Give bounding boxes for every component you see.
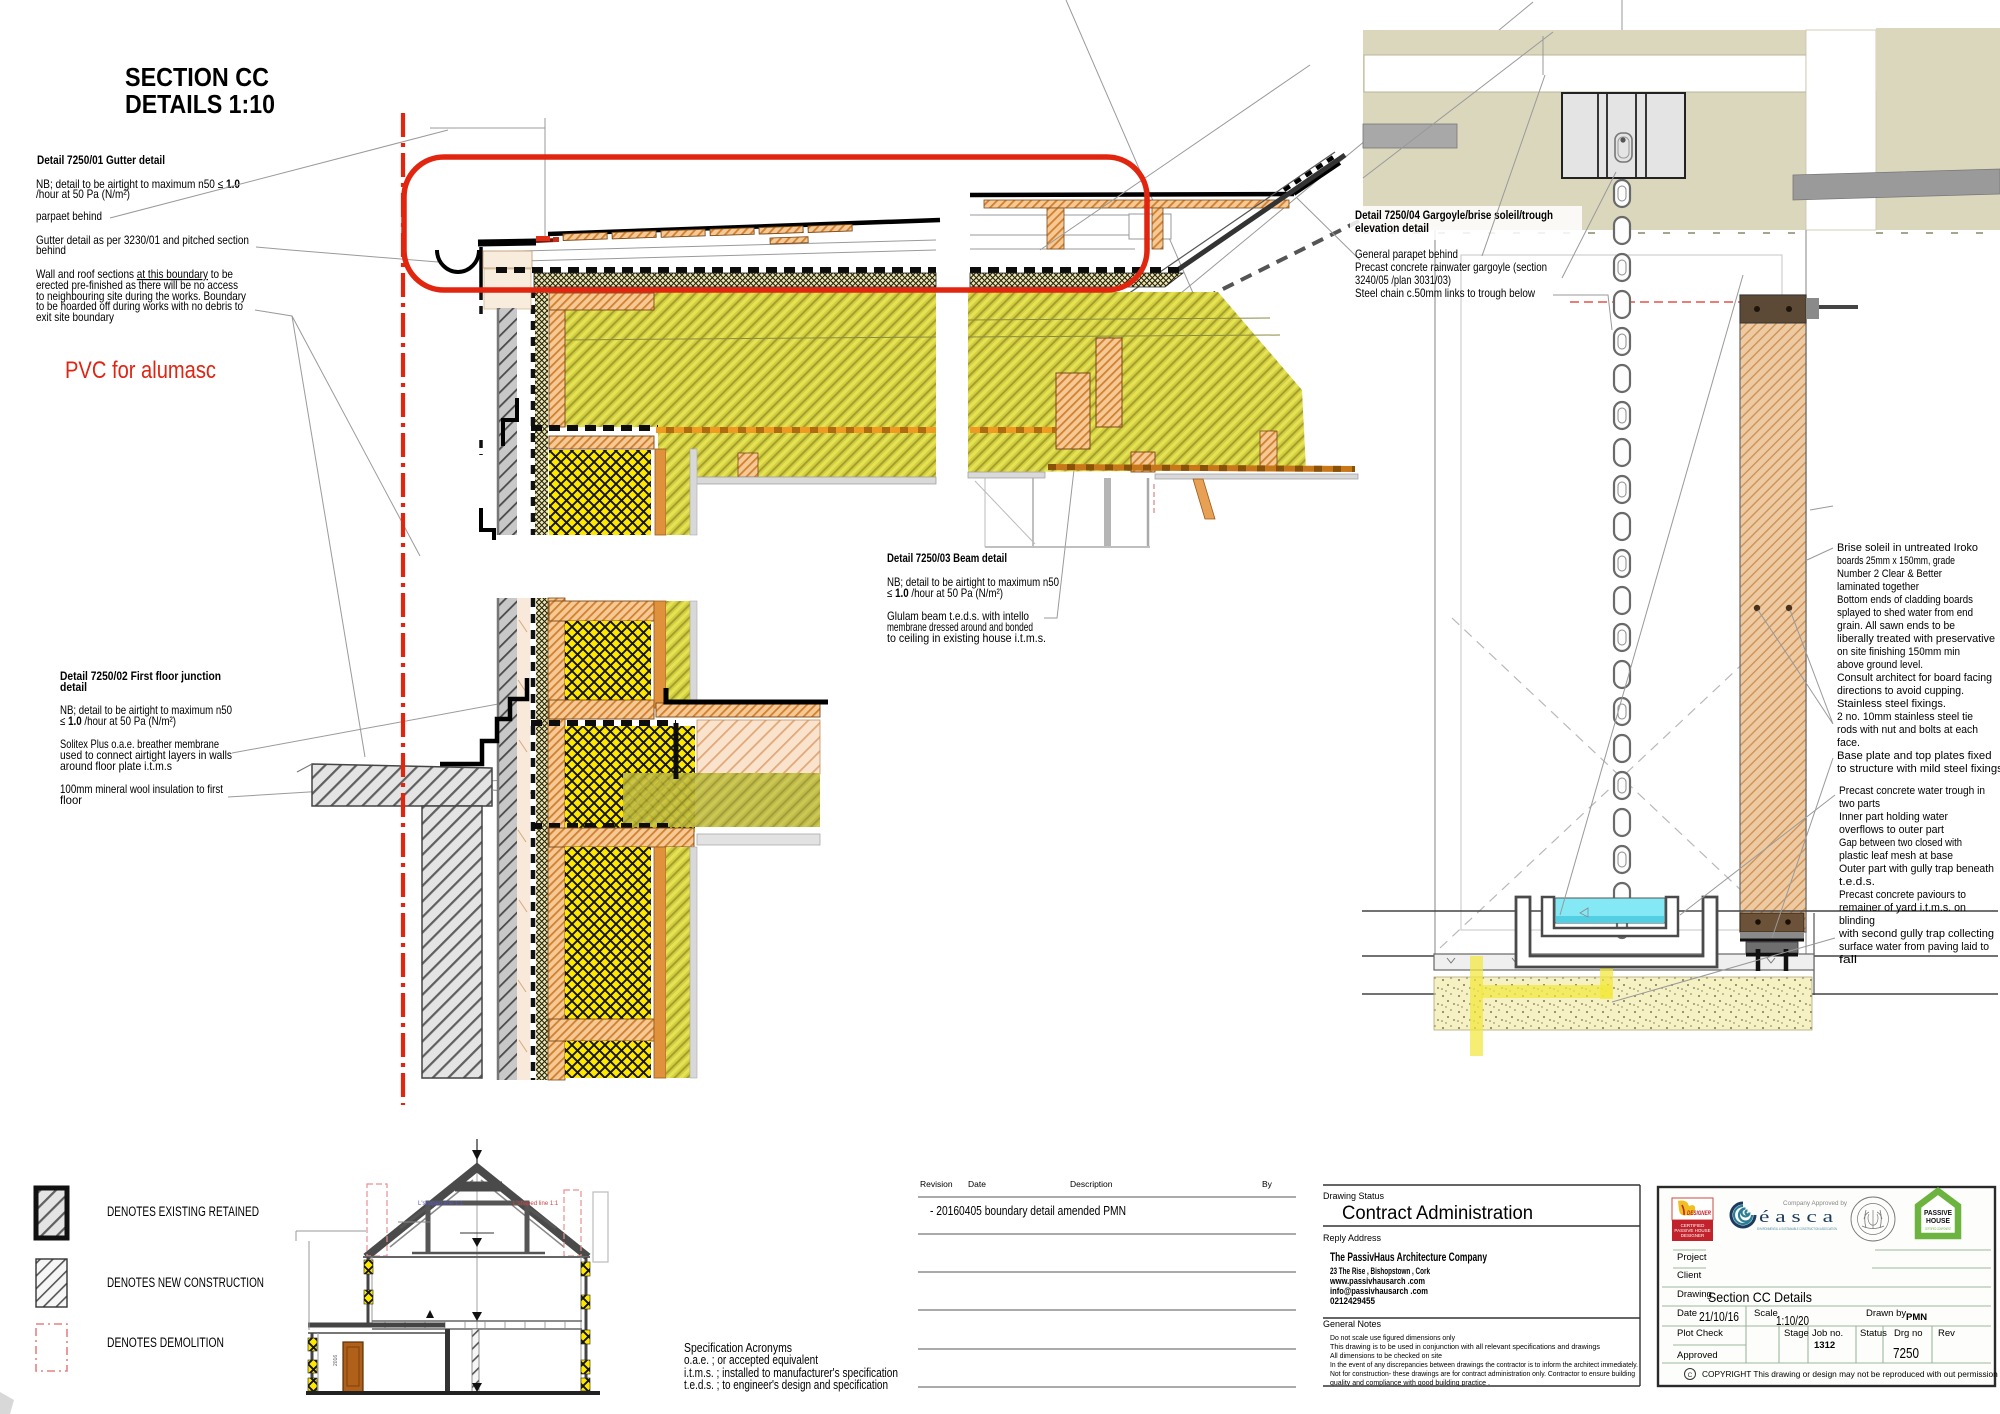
svg-text:Detail 7250/01 Gutter detail: Detail 7250/01 Gutter detail xyxy=(37,153,165,167)
svg-text:By: By xyxy=(1262,1179,1273,1189)
svg-text:In the event of any discrepanc: In the event of any discrepancies betwee… xyxy=(1330,1360,1638,1369)
svg-text:3240/05 /plan 3031/03): 3240/05 /plan 3031/03) xyxy=(1355,273,1451,287)
svg-text:ENVIRONMENTAL & SUSTAINABLE CO: ENVIRONMENTAL & SUSTAINABLE CONSTRUCTION… xyxy=(1757,1227,1837,1231)
svg-text:Drg no: Drg no xyxy=(1894,1328,1923,1339)
svg-text:- 20160405 boundary detail am: - 20160405 boundary detail amended PMN xyxy=(930,1203,1126,1218)
svg-text:Outer part with gully trap ben: Outer part with gully trap beneath xyxy=(1839,863,1994,875)
svg-text:detail: detail xyxy=(60,680,87,694)
svg-text:laminated together: laminated together xyxy=(1837,581,1919,593)
svg-text:L'shaped line 1:1: L'shaped line 1:1 xyxy=(513,1201,559,1207)
svg-text:COPYRIGHT This drawing or des: COPYRIGHT This drawing or design may not… xyxy=(1702,1369,1998,1379)
svg-text:Project: Project xyxy=(1677,1252,1707,1263)
svg-text:Precast concrete water trough: Precast concrete water trough in xyxy=(1839,785,1985,797)
svg-text:HOUSE: HOUSE xyxy=(1926,1216,1950,1225)
svg-text:Rev: Rev xyxy=(1938,1328,1955,1339)
svg-text:behind: behind xyxy=(36,243,66,257)
svg-text:Plot Check: Plot Check xyxy=(1677,1328,1723,1339)
svg-text:2 no. 10mm stainless steel tie: 2 no. 10mm stainless steel tie xyxy=(1837,711,1973,723)
svg-text:Detail 7250/03 Beam detail: Detail 7250/03 Beam detail xyxy=(887,551,1007,565)
svg-text:Approved: Approved xyxy=(1677,1350,1718,1361)
svg-text:parpaet behind: parpaet behind xyxy=(36,209,102,223)
svg-text:DENOTES NEW CONSTRUCTION: DENOTES NEW CONSTRUCTION xyxy=(107,1275,264,1290)
svg-text:plastic leaf mesh at base: plastic leaf mesh at base xyxy=(1839,850,1953,862)
svg-text:Do not scale use figured dimen: Do not scale use figured dimensions only xyxy=(1330,1333,1455,1342)
svg-text:L'shaped line 1:1: L'shaped line 1:1 xyxy=(418,1201,464,1207)
svg-text:DESIGNER: DESIGNER xyxy=(1687,1211,1712,1217)
svg-text:Stage: Stage xyxy=(1784,1328,1809,1339)
svg-text:é a s c a: é a s c a xyxy=(1759,1207,1834,1226)
svg-text:face.: face. xyxy=(1837,737,1860,749)
svg-text:Base plate and top plates fixe: Base plate and top plates fixed xyxy=(1837,750,1992,762)
svg-text:boards 25mm x 150mm, grade: boards 25mm x 150mm, grade xyxy=(1837,555,1955,567)
svg-text:The PassivHaus Architecture Co: The PassivHaus Architecture Company xyxy=(1330,1252,1487,1264)
svg-text:Status: Status xyxy=(1860,1328,1887,1339)
svg-text:Date: Date xyxy=(1677,1308,1697,1319)
svg-text:Not for construction- these d: Not for construction- these drawings are… xyxy=(1330,1369,1635,1378)
svg-text:Contract Administration: Contract Administration xyxy=(1342,1203,1533,1224)
svg-text:with second gully trap collect: with second gully trap collecting xyxy=(1838,928,1994,940)
svg-text:1:10/20: 1:10/20 xyxy=(1776,1313,1809,1328)
svg-text:Precast concrete paviours to: Precast concrete paviours to xyxy=(1839,889,1966,901)
svg-text:Gap between two closed with: Gap between two closed with xyxy=(1839,837,1962,849)
svg-text:DENOTES EXISTING RETAINED: DENOTES EXISTING RETAINED xyxy=(107,1204,259,1219)
svg-text:fall: fall xyxy=(1839,954,1857,966)
svg-text:Steel chain c.50mm links to tr: Steel chain c.50mm links to trough below xyxy=(1355,286,1535,300)
svg-text:Drawn by: Drawn by xyxy=(1866,1308,1906,1319)
svg-text:Company Approved by: Company Approved by xyxy=(1783,1201,1847,1207)
svg-text:Detail 7250/04 Gargoyle/brise: Detail 7250/04 Gargoyle/brise soleil/tro… xyxy=(1355,208,1553,222)
svg-text:rods with nut and bolts at eac: rods with nut and bolts at each xyxy=(1837,724,1978,736)
svg-text:DETAILS 1:10: DETAILS 1:10 xyxy=(125,89,275,119)
svg-text:2016: 2016 xyxy=(333,1355,339,1366)
svg-text:0212429455: 0212429455 xyxy=(1330,1296,1376,1307)
svg-text:DENOTES DEMOLITION: DENOTES DEMOLITION xyxy=(107,1335,224,1350)
svg-text:Drawing: Drawing xyxy=(1677,1289,1712,1300)
svg-text:All dimensions to be checked o: All dimensions to be checked on site xyxy=(1330,1351,1442,1360)
svg-text:7250: 7250 xyxy=(1893,1346,1919,1362)
svg-text:Revision: Revision xyxy=(920,1179,953,1189)
svg-text:blinding: blinding xyxy=(1839,915,1875,927)
svg-text:surface water from paving laid: surface water from paving laid to xyxy=(1839,941,1989,953)
svg-text:above ground level.: above ground level. xyxy=(1837,659,1923,671)
svg-text:exit site boundary: exit site boundary xyxy=(36,310,114,324)
svg-text:remainer of yard i.t.m.s. on: remainer of yard i.t.m.s. on xyxy=(1839,902,1966,914)
svg-text:≤ 1.0 /hour at 50 Pa (N/m²): ≤ 1.0 /hour at 50 Pa (N/m²) xyxy=(887,586,1003,600)
svg-text:elevation detail: elevation detail xyxy=(1355,221,1429,235)
svg-text:General parapet behind: General parapet behind xyxy=(1355,247,1458,261)
svg-text:Job no.: Job no. xyxy=(1812,1328,1843,1339)
svg-text:liberally treated with preserv: liberally treated with preservative xyxy=(1837,633,1995,645)
svg-text:t.e.d.s.: t.e.d.s. xyxy=(1839,876,1875,888)
svg-text:to ceiling in existing house i: to ceiling in existing house i.t.m.s. xyxy=(887,631,1046,645)
svg-text:Brise soleil in untreated Irok: Brise soleil in untreated Iroko xyxy=(1837,542,1978,554)
svg-text:Number 2 Clear & Better: Number 2 Clear & Better xyxy=(1837,568,1942,580)
svg-text:CERTIFIED COMPONENT: CERTIFIED COMPONENT xyxy=(1925,1227,1951,1231)
svg-text:100mm mineral wool insulation: 100mm mineral wool insulation to first xyxy=(60,782,224,796)
svg-text:General Notes: General Notes xyxy=(1323,1319,1382,1329)
svg-text:PMN: PMN xyxy=(1906,1312,1927,1323)
svg-text:splayed to shed water from end: splayed to shed water from end xyxy=(1837,607,1973,619)
svg-text:/hour at 50 Pa (N/m²): /hour at 50 Pa (N/m²) xyxy=(36,187,130,201)
svg-text:Date: Date xyxy=(968,1179,986,1189)
svg-text:Client: Client xyxy=(1677,1270,1702,1281)
svg-text:Bottom ends of cladding boards: Bottom ends of cladding boards xyxy=(1837,594,1973,606)
svg-text:Precast concrete rainwater gar: Precast concrete rainwater gargoyle (sec… xyxy=(1355,260,1547,274)
svg-text:Gutter detail as per 3230/01 a: Gutter detail as per 3230/01 and pitched… xyxy=(36,233,249,247)
svg-text:SECTION CC: SECTION CC xyxy=(125,62,269,92)
svg-text:Consult architect for board fa: Consult architect for board facing xyxy=(1837,672,1992,684)
svg-text:t.e.d.s. ; to engineer's desig: t.e.d.s. ; to engineer's design and spec… xyxy=(684,1377,888,1392)
svg-text:Drawing Status: Drawing Status xyxy=(1323,1191,1385,1201)
svg-text:C: C xyxy=(1688,1372,1693,1379)
svg-text:on site finishing 150mm min: on site finishing 150mm min xyxy=(1837,646,1960,658)
svg-text:Scale: Scale xyxy=(1754,1308,1778,1319)
svg-text:DESIGNER: DESIGNER xyxy=(1681,1233,1705,1238)
svg-text:to structure with mild steel f: to structure with mild steel fixings xyxy=(1837,763,2000,775)
svg-text:Description: Description xyxy=(1070,1179,1113,1189)
svg-text:around floor plate i.t.m.s: around floor plate i.t.m.s xyxy=(60,759,172,773)
svg-text:PVC for alumasc: PVC for alumasc xyxy=(65,357,216,384)
svg-text:This drawing is to be used in: This drawing is to be used in conjunctio… xyxy=(1330,1342,1600,1351)
svg-text:≤ 1.0 /hour at 50 Pa (N/m²): ≤ 1.0 /hour at 50 Pa (N/m²) xyxy=(60,714,176,728)
svg-text:Section CC Details: Section CC Details xyxy=(1708,1289,1812,1305)
svg-text:directions to avoid cupping.: directions to avoid cupping. xyxy=(1837,685,1964,697)
svg-text:floor: floor xyxy=(60,793,82,807)
svg-text:Inner part holding water: Inner part holding water xyxy=(1839,811,1948,823)
svg-text:overflows to outer part: overflows to outer part xyxy=(1839,824,1945,836)
svg-text:Reply Address: Reply Address xyxy=(1323,1233,1382,1243)
svg-text:Stainless steel fixings.: Stainless steel fixings. xyxy=(1837,698,1946,710)
svg-text:grain. All sawn ends to be: grain. All sawn ends to be xyxy=(1837,620,1955,632)
svg-text:two parts: two parts xyxy=(1839,798,1880,810)
svg-text:1312: 1312 xyxy=(1814,1340,1835,1351)
svg-text:21/10/16: 21/10/16 xyxy=(1699,1309,1739,1324)
